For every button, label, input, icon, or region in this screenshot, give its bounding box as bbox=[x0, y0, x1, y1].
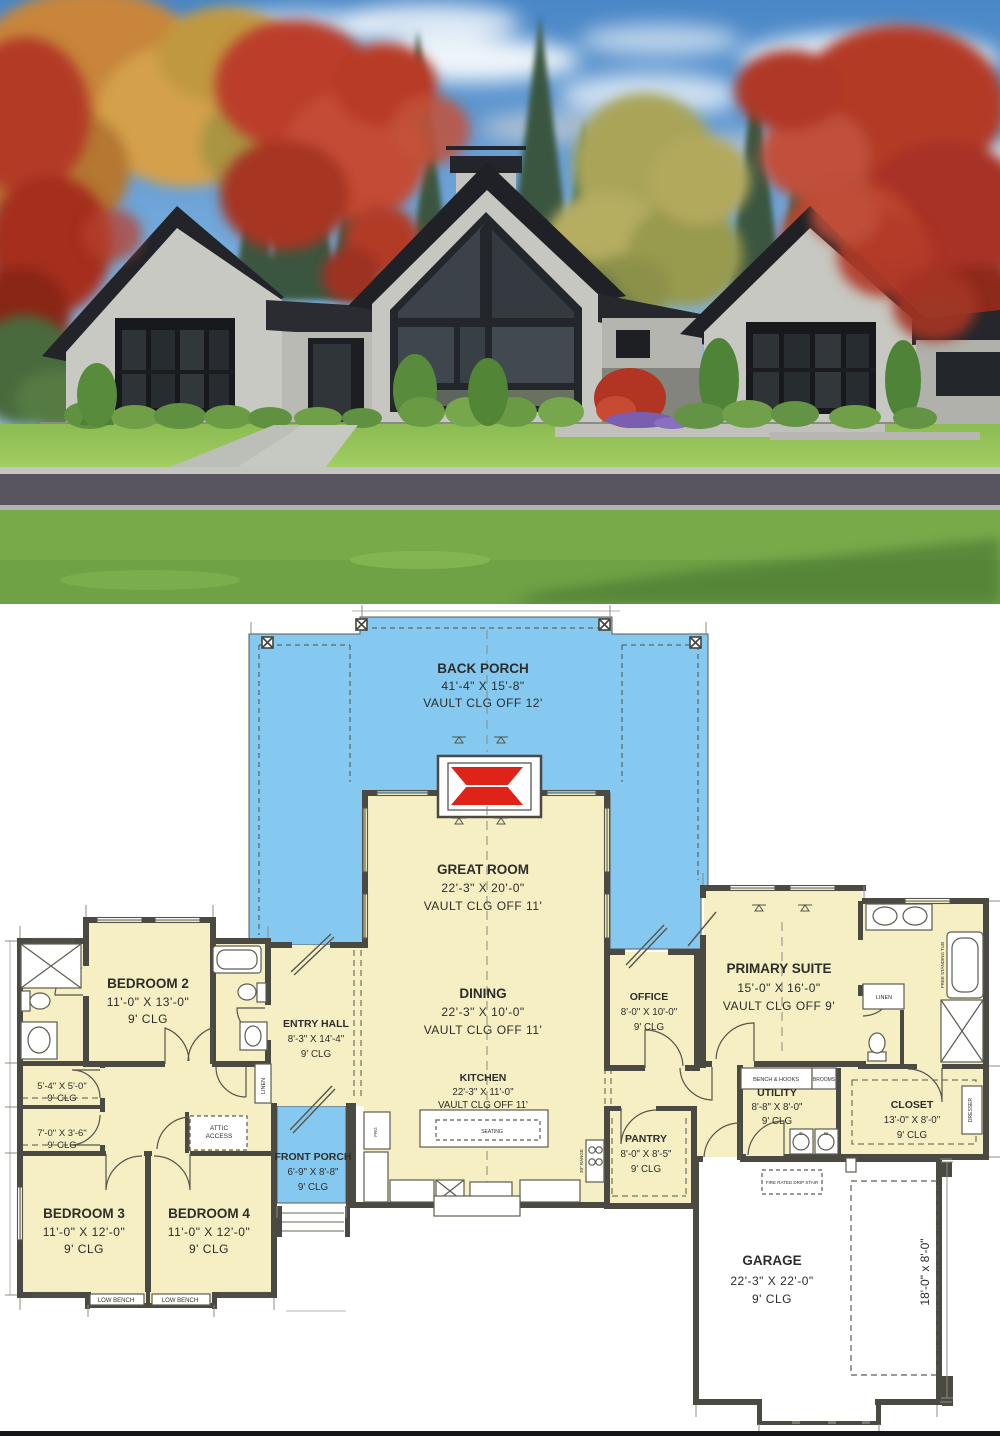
svg-text:DRESSER: DRESSER bbox=[968, 1098, 974, 1123]
svg-text:30" RANGE: 30" RANGE bbox=[579, 1149, 584, 1173]
svg-text:5'-4" X 5'-0": 5'-4" X 5'-0" bbox=[37, 1081, 86, 1092]
svg-text:PRIMARY SUITE: PRIMARY SUITE bbox=[726, 961, 831, 976]
svg-text:11'-0" X 12'-0": 11'-0" X 12'-0" bbox=[43, 1225, 125, 1239]
svg-text:ENTRY HALL: ENTRY HALL bbox=[283, 1018, 350, 1030]
svg-text:6'-9" X 8'-8": 6'-9" X 8'-8" bbox=[288, 1167, 340, 1178]
svg-text:22'-3" X 22'-0": 22'-3" X 22'-0" bbox=[730, 1274, 813, 1288]
svg-text:41'-4" X 15'-8": 41'-4" X 15'-8" bbox=[441, 679, 524, 693]
svg-text:7'-0" X 3'-6": 7'-0" X 3'-6" bbox=[37, 1128, 86, 1139]
svg-text:ACCESS: ACCESS bbox=[206, 1133, 233, 1140]
svg-text:BEDROOM 4: BEDROOM 4 bbox=[168, 1206, 250, 1221]
svg-text:9' CLG: 9' CLG bbox=[631, 1164, 661, 1175]
svg-text:9' CLG: 9' CLG bbox=[47, 1093, 76, 1104]
svg-text:SEATING: SEATING bbox=[481, 1129, 503, 1135]
svg-text:GREAT ROOM: GREAT ROOM bbox=[437, 862, 529, 877]
svg-text:9' CLG: 9' CLG bbox=[752, 1292, 792, 1306]
svg-text:VAULT CLG OFF 12': VAULT CLG OFF 12' bbox=[423, 696, 543, 710]
svg-text:ATTIC: ATTIC bbox=[210, 1125, 229, 1132]
svg-text:11'-0" X 12'-0": 11'-0" X 12'-0" bbox=[168, 1225, 250, 1239]
svg-text:8'-0" X 10'-0": 8'-0" X 10'-0" bbox=[621, 1007, 678, 1018]
svg-text:DINING: DINING bbox=[459, 986, 506, 1001]
svg-text:UTILITY: UTILITY bbox=[757, 1087, 797, 1099]
svg-text:15'-0" X 16'-0": 15'-0" X 16'-0" bbox=[737, 981, 820, 995]
svg-text:LOW BENCH: LOW BENCH bbox=[98, 1298, 134, 1304]
svg-text:9' CLG: 9' CLG bbox=[47, 1140, 76, 1151]
svg-text:9' CLG: 9' CLG bbox=[298, 1182, 328, 1193]
svg-text:9' CLG: 9' CLG bbox=[762, 1116, 792, 1127]
svg-text:VAULT CLG OFF 11': VAULT CLG OFF 11' bbox=[424, 899, 543, 913]
svg-text:FRG: FRG bbox=[373, 1127, 378, 1137]
svg-text:LOW BENCH: LOW BENCH bbox=[162, 1298, 198, 1304]
svg-text:18'-0" x 8'-0": 18'-0" x 8'-0" bbox=[918, 1238, 932, 1305]
svg-text:BROOMS: BROOMS bbox=[813, 1077, 836, 1083]
svg-text:KITCHEN: KITCHEN bbox=[460, 1072, 507, 1084]
svg-text:8'-0" X 8'-5": 8'-0" X 8'-5" bbox=[621, 1149, 673, 1160]
svg-text:BENCH & HOOKS: BENCH & HOOKS bbox=[753, 1077, 799, 1083]
svg-text:FREE STANDING TUB: FREE STANDING TUB bbox=[940, 942, 945, 988]
svg-text:BEDROOM 2: BEDROOM 2 bbox=[107, 976, 189, 991]
svg-text:BACK PORCH: BACK PORCH bbox=[437, 661, 529, 676]
svg-text:9' CLG: 9' CLG bbox=[189, 1242, 229, 1256]
svg-text:13'-0" X 8'-0": 13'-0" X 8'-0" bbox=[884, 1115, 941, 1126]
svg-text:FRONT PORCH: FRONT PORCH bbox=[275, 1151, 352, 1163]
svg-text:9' CLG: 9' CLG bbox=[897, 1130, 927, 1141]
svg-text:VAULT CLG OFF 11': VAULT CLG OFF 11' bbox=[438, 1100, 528, 1111]
svg-text:9' CLG: 9' CLG bbox=[634, 1022, 664, 1033]
svg-text:VAULT CLG OFF 9': VAULT CLG OFF 9' bbox=[723, 999, 835, 1013]
svg-text:OFFICE: OFFICE bbox=[630, 991, 669, 1003]
svg-text:22'-3" X 11'-0": 22'-3" X 11'-0" bbox=[452, 1087, 514, 1098]
svg-text:BEDROOM 3: BEDROOM 3 bbox=[43, 1206, 125, 1221]
svg-text:11'-0" X 13'-0": 11'-0" X 13'-0" bbox=[107, 995, 189, 1009]
svg-text:FIRE RATED DRIP STAIR: FIRE RATED DRIP STAIR bbox=[766, 1180, 819, 1185]
svg-text:PANTRY: PANTRY bbox=[625, 1133, 667, 1145]
svg-text:9' CLG: 9' CLG bbox=[301, 1049, 331, 1060]
svg-text:9' CLG: 9' CLG bbox=[64, 1242, 104, 1256]
svg-text:22'-3" X 10'-0": 22'-3" X 10'-0" bbox=[441, 1005, 524, 1019]
svg-text:22'-3" X 20'-0": 22'-3" X 20'-0" bbox=[441, 881, 524, 895]
svg-text:LINEN: LINEN bbox=[261, 1078, 267, 1094]
svg-text:VAULT CLG OFF 11': VAULT CLG OFF 11' bbox=[424, 1023, 543, 1037]
svg-text:GARAGE: GARAGE bbox=[742, 1253, 801, 1268]
svg-text:CLOSET: CLOSET bbox=[891, 1099, 934, 1111]
svg-text:LINEN: LINEN bbox=[876, 995, 892, 1001]
svg-text:8'-8" X 8'-0": 8'-8" X 8'-0" bbox=[752, 1102, 804, 1113]
svg-text:9' CLG: 9' CLG bbox=[128, 1012, 168, 1026]
svg-text:8'-3" X 14'-4": 8'-3" X 14'-4" bbox=[288, 1034, 345, 1045]
